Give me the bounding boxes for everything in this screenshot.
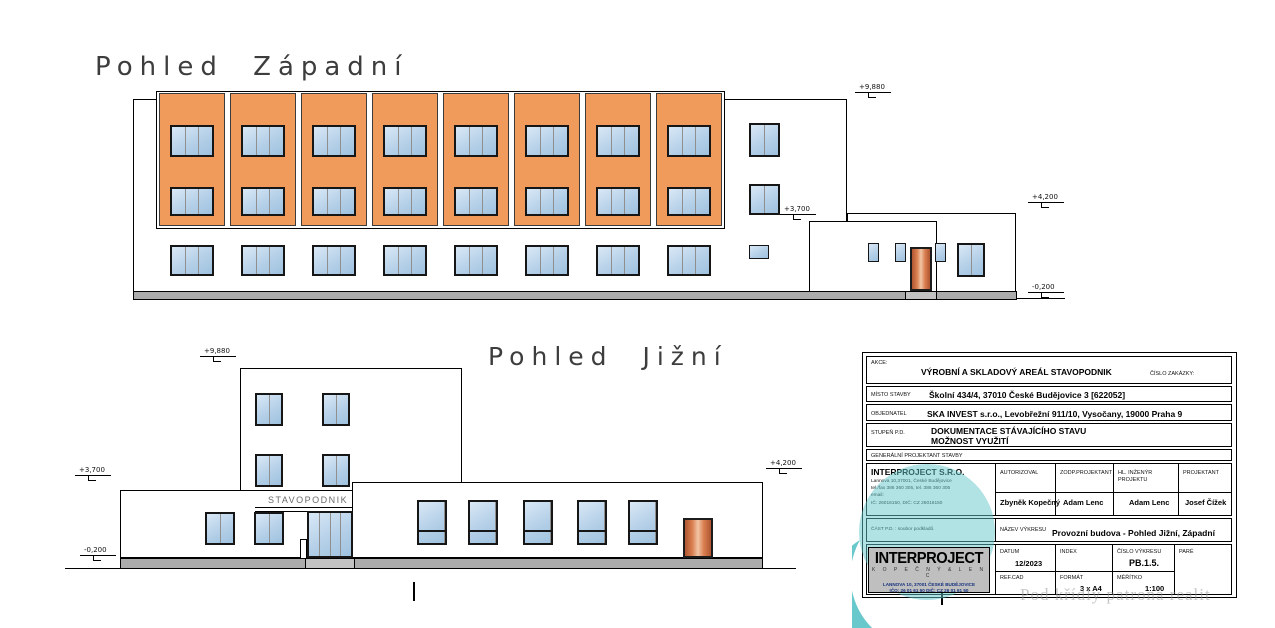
window-transom <box>630 530 656 532</box>
fold-mark <box>413 582 415 601</box>
window <box>170 125 214 157</box>
window <box>667 125 711 157</box>
window <box>749 184 780 215</box>
window-transom <box>579 530 605 532</box>
window <box>468 500 498 545</box>
window <box>454 245 498 276</box>
elevation-marker: +3,700 <box>780 206 816 220</box>
west-door-step <box>905 291 937 300</box>
interproject-logo: INTERPROJECT K O P E Č N Ý & L E N C LAN… <box>868 547 990 593</box>
window <box>255 454 283 487</box>
building-sign: STAVOPODNIK <box>268 495 348 505</box>
ground-line <box>65 568 796 569</box>
window-transom <box>470 530 496 532</box>
ground-line <box>1017 298 1065 299</box>
window <box>205 512 235 545</box>
titleblock-row-people: INTERPROJECT S.R.O. Lannova 10,37001, Če… <box>866 463 1232 516</box>
window <box>170 187 214 216</box>
window <box>322 454 350 487</box>
window <box>383 245 427 276</box>
window <box>383 125 427 157</box>
elevation-marker: -0,200 <box>1028 284 1064 298</box>
canopy-line <box>255 507 352 508</box>
window <box>525 125 569 157</box>
elevation-marker: +4,200 <box>1028 194 1064 208</box>
window <box>454 187 498 216</box>
window <box>322 393 350 426</box>
south-view-title: Pohled Jižní <box>488 342 728 371</box>
window <box>895 243 906 262</box>
window <box>935 243 946 262</box>
window <box>241 125 285 157</box>
window <box>868 243 879 262</box>
elevation-marker: +4,200 <box>766 460 802 474</box>
window <box>596 125 640 157</box>
titleblock-row-stupen: STUPEŇ P.D. DOKUMENTACE STÁVAJÍCÍHO STAV… <box>866 423 1232 447</box>
window <box>957 243 985 277</box>
titleblock-row-general: GENERÁLNÍ PROJEKTANT STAVBY <box>866 449 1232 461</box>
window <box>312 187 356 216</box>
window <box>241 245 285 276</box>
titleblock-row-misto: MÍSTO STAVBY Školní 434/4, 37010 České B… <box>866 386 1232 402</box>
window-transom <box>525 530 551 532</box>
window <box>596 187 640 216</box>
titleblock-row-objednatel: OBJEDNATEL SKA INVEST s.r.o., Levobřežní… <box>866 404 1232 421</box>
south-entrance-door <box>307 511 353 558</box>
window <box>749 245 769 259</box>
window <box>749 123 780 157</box>
window <box>312 125 356 157</box>
elevation-marker: +3,700 <box>75 467 111 481</box>
elevation-marker: +9,880 <box>200 348 236 362</box>
west-plinth <box>133 291 1017 300</box>
window-transom <box>419 530 445 532</box>
window <box>417 500 447 545</box>
elevation-marker: -0,200 <box>80 547 116 561</box>
window <box>254 512 284 545</box>
window <box>667 187 711 216</box>
window <box>170 245 214 276</box>
south-side-door <box>683 518 713 558</box>
title-block: AKCE: VÝROBNÍ A SKLADOVÝ AREÁL STAVOPODN… <box>862 352 1237 598</box>
drawing-sheet: Pohled Západní +9,880 +3,700 +4,200 -0,2… <box>0 0 1275 628</box>
window <box>596 245 640 276</box>
elevation-marker: +9,880 <box>855 84 891 98</box>
west-entrance-door <box>910 247 932 291</box>
window <box>525 245 569 276</box>
window <box>312 245 356 276</box>
window <box>525 187 569 216</box>
window <box>241 187 285 216</box>
titleblock-row-akce: AKCE: VÝROBNÍ A SKLADOVÝ AREÁL STAVOPODN… <box>866 356 1232 384</box>
window <box>577 500 607 545</box>
watermark: Pod křídly patrona realit <box>1020 585 1211 605</box>
window <box>383 187 427 216</box>
window <box>667 245 711 276</box>
west-view-title: Pohled Západní <box>95 52 409 82</box>
window <box>523 500 553 545</box>
window <box>628 500 658 545</box>
window <box>255 393 283 426</box>
window <box>454 125 498 157</box>
titleblock-row-nazev: ČÁST P.D. : soubor podkladů. NÁZEV VÝKRE… <box>866 518 1232 542</box>
